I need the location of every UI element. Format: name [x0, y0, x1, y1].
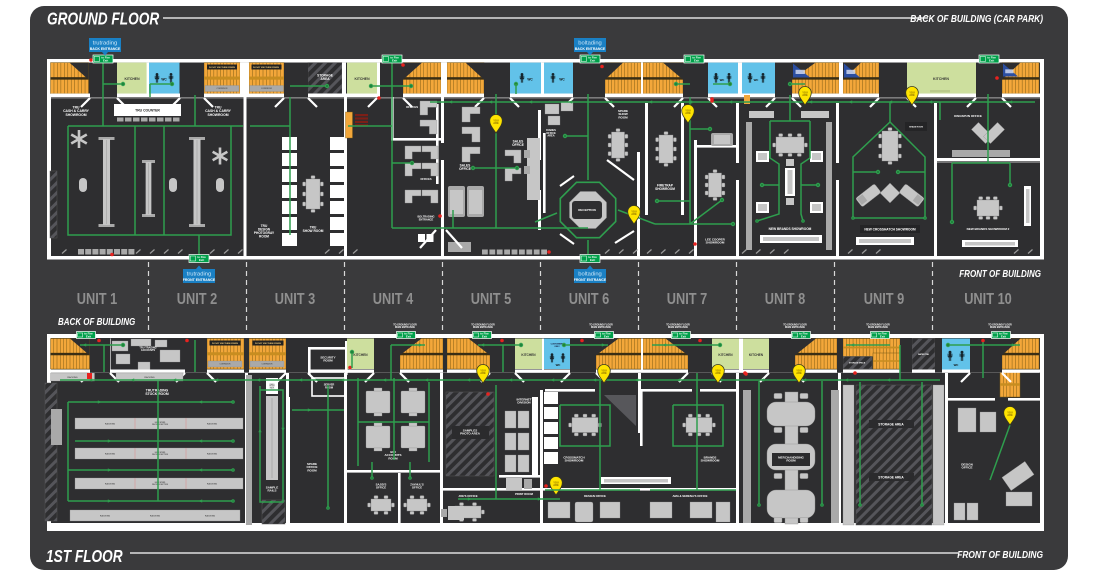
- svg-text:ARE: ARE: [1007, 413, 1013, 417]
- svg-text:GROUND FLOOR: GROUND FLOOR: [47, 10, 160, 29]
- svg-text:WC: WC: [527, 78, 533, 82]
- svg-text:BACK OF BUILDING: BACK OF BUILDING: [58, 316, 135, 327]
- svg-text:KITCHEN: KITCHEN: [354, 77, 370, 81]
- svg-text:UNIT 7: UNIT 7: [667, 291, 707, 309]
- svg-text:ONLY: ONLY: [554, 346, 560, 348]
- svg-text:KITCHEN: KITCHEN: [521, 353, 536, 357]
- svg-text:ARE: ARE: [553, 483, 559, 487]
- svg-text:DO NOT USE THESE STAIRS: DO NOT USE THESE STAIRS: [255, 342, 282, 345]
- svg-text:NEW BRANDS SHOWROOM 2: NEW BRANDS SHOWROOM 2: [967, 227, 1010, 231]
- svg-text:FRONT OF BUILDING: FRONT OF BUILDING: [959, 268, 1041, 279]
- svg-text:RACKING: RACKING: [100, 515, 111, 518]
- svg-text:UNIT 4: UNIT 4: [373, 291, 413, 309]
- svg-text:ARE: ARE: [480, 371, 486, 375]
- svg-text:MAIN ENTRANCE: MAIN ENTRANCE: [591, 326, 611, 329]
- svg-text:RAILS: RAILS: [268, 489, 277, 493]
- svg-text:STORAGE AREA: STORAGE AREA: [878, 476, 904, 480]
- svg-text:trutrading: trutrading: [93, 41, 118, 47]
- svg-text:1ST FLOOR: 1ST FLOOR: [46, 548, 123, 567]
- svg-text:RACKING: RACKING: [150, 515, 161, 518]
- svg-text:WC: WC: [559, 78, 565, 82]
- svg-text:SHADE ROOM: SHADE ROOM: [909, 126, 923, 129]
- svg-text:SHOWROOM: SHOWROOM: [65, 113, 86, 117]
- svg-text:ROOM: ROOM: [786, 459, 796, 463]
- svg-text:RACKING: RACKING: [105, 423, 116, 426]
- svg-text:WC: WC: [161, 78, 167, 82]
- svg-text:ROOM: ROOM: [307, 468, 317, 472]
- svg-text:FRONT OF BUILDING: FRONT OF BUILDING: [957, 549, 1043, 561]
- svg-text:UNIT 8: UNIT 8: [765, 291, 805, 309]
- svg-text:KITCHEN: KITCHEN: [124, 77, 140, 81]
- svg-text:trutrading: trutrading: [187, 272, 212, 278]
- svg-text:Exit: Exit: [694, 58, 699, 62]
- svg-text:Exit: Exit: [604, 334, 609, 338]
- svg-text:Exit: Exit: [103, 58, 108, 62]
- svg-text:BACK ENTRANCE: BACK ENTRANCE: [575, 47, 606, 51]
- svg-text:FRONT ENTRANCE: FRONT ENTRANCE: [574, 278, 607, 282]
- svg-text:MAIN ENTRANCE: MAIN ENTRANCE: [868, 326, 888, 329]
- svg-text:RACKING SECTION: RACKING SECTION: [152, 453, 169, 456]
- svg-text:RACKING SECTION: RACKING SECTION: [152, 483, 169, 486]
- svg-text:UNIT 5: UNIT 5: [471, 291, 511, 309]
- svg-text:Exit: Exit: [86, 334, 91, 338]
- svg-text:ACCOUNTS: ACCOUNTS: [141, 349, 155, 352]
- svg-text:Exit: Exit: [406, 334, 411, 338]
- svg-text:boltading: boltading: [578, 41, 602, 47]
- svg-text:ARE: ARE: [631, 212, 637, 216]
- svg-text:RACKING: RACKING: [105, 453, 116, 456]
- svg-text:RECEPTION: RECEPTION: [578, 208, 596, 212]
- svg-text:CORRIDOR: CORRIDOR: [261, 88, 272, 90]
- svg-text:STORAGE AREA: STORAGE AREA: [878, 423, 904, 427]
- svg-text:ARE: ARE: [715, 371, 721, 375]
- svg-text:BACK ENTRANCE: BACK ENTRANCE: [90, 47, 121, 51]
- svg-text:DO NOT USE THESE STAIRS: DO NOT USE THESE STAIRS: [209, 66, 236, 69]
- svg-text:UNIT 1: UNIT 1: [77, 291, 117, 309]
- svg-text:JOE'S OFFICE: JOE'S OFFICE: [458, 494, 477, 498]
- svg-text:ARE: ARE: [796, 371, 802, 375]
- svg-text:ARE: ARE: [909, 93, 915, 97]
- svg-text:ARE: ARE: [493, 121, 499, 125]
- svg-text:UNIT 10: UNIT 10: [964, 291, 1012, 309]
- svg-text:ROOM: ROOM: [259, 234, 269, 238]
- svg-text:MAIN ENTRANCE: MAIN ENTRANCE: [395, 326, 415, 329]
- svg-text:OFFICES: OFFICES: [406, 105, 418, 109]
- svg-text:CORRIDOR: CORRIDOR: [217, 88, 228, 90]
- svg-text:Exit: Exit: [681, 334, 686, 338]
- svg-text:Exit: Exit: [1001, 334, 1006, 338]
- svg-text:OFFICE: OFFICE: [459, 167, 471, 171]
- svg-text:OFFICE: OFFICE: [512, 143, 524, 147]
- svg-text:CORRIDOR: CORRIDOR: [262, 364, 273, 366]
- svg-text:TRU COUNTER: TRU COUNTER: [135, 109, 160, 113]
- svg-text:MAIN ENTRANCE: MAIN ENTRANCE: [473, 326, 493, 329]
- svg-text:RACKING: RACKING: [144, 376, 155, 379]
- svg-text:UNIT 2: UNIT 2: [177, 291, 217, 309]
- svg-text:RACKING: RACKING: [67, 376, 78, 379]
- svg-text:ROOM: ROOM: [323, 359, 333, 363]
- svg-text:RACKING: RACKING: [207, 453, 218, 456]
- svg-text:RACKING: RACKING: [105, 483, 116, 486]
- svg-text:Exit: Exit: [590, 58, 595, 62]
- svg-text:ARE: ARE: [601, 371, 607, 375]
- svg-text:Exit: Exit: [199, 258, 204, 262]
- svg-text:SHOWROOM: SHOWROOM: [655, 187, 675, 191]
- svg-text:SHOW ROOM: SHOW ROOM: [303, 229, 324, 233]
- svg-text:ROOM: ROOM: [325, 385, 333, 389]
- svg-text:ROOM: ROOM: [270, 386, 276, 388]
- svg-text:NEW CROSSHATCH SHOWROOM: NEW CROSSHATCH SHOWROOM: [864, 228, 916, 232]
- svg-text:KITCHEN: KITCHEN: [718, 353, 733, 357]
- svg-text:DO NOT USE THESE STAIRS: DO NOT USE THESE STAIRS: [212, 342, 239, 345]
- svg-text:RACKING: RACKING: [207, 483, 218, 486]
- svg-text:ROOM: ROOM: [388, 456, 398, 460]
- svg-text:Exit: Exit: [801, 334, 806, 338]
- svg-text:UNIT 9: UNIT 9: [864, 291, 904, 309]
- svg-text:OFFICES: OFFICES: [420, 177, 432, 181]
- svg-text:AREA: AREA: [320, 77, 330, 81]
- svg-text:ARE: ARE: [685, 111, 691, 115]
- svg-text:boltading: boltading: [578, 272, 602, 278]
- svg-text:Exit: Exit: [392, 58, 397, 62]
- svg-text:MAIN ENTRANCE: MAIN ENTRANCE: [668, 326, 688, 329]
- svg-text:PHOTO AREA: PHOTO AREA: [460, 432, 481, 436]
- svg-text:BACK OF BUILDING (CAR PARK): BACK OF BUILDING (CAR PARK): [910, 13, 1043, 25]
- svg-text:CORRIDOR: CORRIDOR: [220, 364, 231, 366]
- svg-text:STOCK ROOM: STOCK ROOM: [145, 392, 168, 396]
- svg-text:FRONT ENTRANCE: FRONT ENTRANCE: [183, 278, 216, 282]
- svg-text:RACKING SECTION: RACKING SECTION: [152, 423, 169, 426]
- svg-text:Exit: Exit: [880, 334, 885, 338]
- svg-text:OFFICE: OFFICE: [962, 466, 973, 470]
- svg-text:AREA: AREA: [547, 134, 554, 138]
- svg-text:SHOWROOM: SHOWROOM: [706, 241, 725, 245]
- svg-text:KINGSPUN OFFICE: KINGSPUN OFFICE: [954, 114, 982, 118]
- svg-text:UNIT 3: UNIT 3: [275, 291, 315, 309]
- svg-text:MAIN ENTRANCE: MAIN ENTRANCE: [785, 326, 805, 329]
- svg-text:KITCHEN: KITCHEN: [749, 353, 764, 357]
- svg-text:PRINT ROOM: PRINT ROOM: [515, 492, 534, 496]
- svg-text:SHOWROOM: SHOWROOM: [565, 459, 584, 463]
- svg-text:UNIT 6: UNIT 6: [569, 291, 609, 309]
- svg-text:RACKING: RACKING: [207, 423, 218, 426]
- svg-text:SHOWROOM: SHOWROOM: [207, 113, 228, 117]
- svg-text:Exit: Exit: [590, 258, 595, 262]
- svg-text:AMA & SERENA'S OFFICE: AMA & SERENA'S OFFICE: [672, 494, 707, 498]
- svg-text:DIVISION: DIVISION: [517, 401, 530, 405]
- svg-text:RACKING: RACKING: [205, 515, 216, 518]
- svg-text:KITCHEN: KITCHEN: [933, 77, 949, 81]
- svg-text:OFFICE: OFFICE: [376, 485, 386, 489]
- svg-text:ENTRANCE: ENTRANCE: [419, 217, 434, 221]
- svg-text:NEW BRANDS SHOWROOM: NEW BRANDS SHOWROOM: [769, 227, 812, 231]
- svg-text:ARE: ARE: [802, 93, 808, 97]
- svg-text:MAIN ENTRANCE: MAIN ENTRANCE: [990, 326, 1010, 329]
- svg-text:Exit: Exit: [482, 334, 487, 338]
- svg-text:ROOM: ROOM: [618, 115, 628, 119]
- svg-text:KITCHEN: KITCHEN: [353, 353, 368, 357]
- svg-text:SHOWROOM: SHOWROOM: [701, 459, 720, 463]
- svg-text:OFFICE: OFFICE: [412, 485, 422, 489]
- svg-text:DO NOT USE THESE STAIRS: DO NOT USE THESE STAIRS: [253, 66, 280, 69]
- svg-text:Exit: Exit: [989, 58, 994, 62]
- svg-text:WATER TNK: WATER TNK: [918, 353, 930, 356]
- svg-text:STORAGE SPACE: STORAGE SPACE: [849, 362, 866, 365]
- svg-text:DESIGN OFFICE: DESIGN OFFICE: [584, 494, 606, 498]
